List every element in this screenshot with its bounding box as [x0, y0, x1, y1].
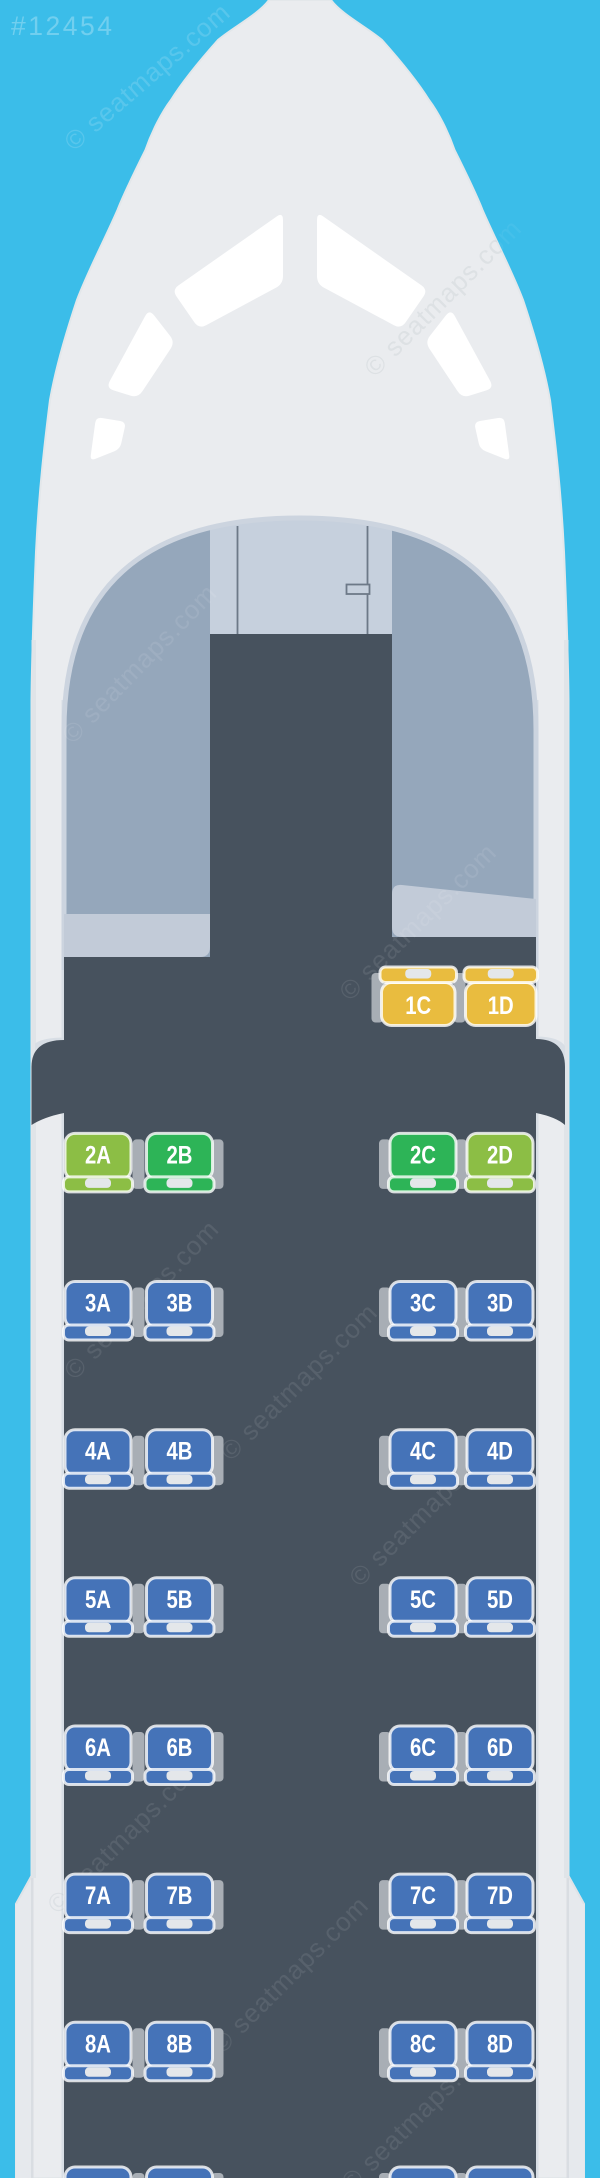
svg-text:2D: 2D	[487, 1141, 513, 1169]
svg-text:6D: 6D	[487, 1734, 513, 1762]
svg-text:4D: 4D	[487, 1438, 513, 1466]
svg-text:4A: 4A	[85, 1438, 111, 1466]
svg-text:3A: 3A	[85, 1290, 111, 1318]
svg-text:7A: 7A	[85, 1882, 111, 1910]
svg-text:8D: 8D	[487, 2030, 513, 2058]
svg-text:6A: 6A	[85, 1734, 111, 1762]
svg-text:6C: 6C	[410, 1734, 436, 1762]
svg-text:2B: 2B	[167, 1141, 193, 1169]
svg-text:7D: 7D	[487, 1882, 513, 1910]
svg-text:3C: 3C	[410, 1290, 436, 1318]
svg-text:7C: 7C	[410, 1882, 436, 1910]
svg-text:1D: 1D	[488, 992, 514, 1020]
svg-text:1C: 1C	[405, 992, 431, 1020]
svg-text:5D: 5D	[487, 1586, 513, 1614]
svg-text:2A: 2A	[85, 1141, 111, 1169]
svg-text:8B: 8B	[167, 2030, 193, 2058]
svg-text:5A: 5A	[85, 1586, 111, 1614]
svg-text:4C: 4C	[410, 1438, 436, 1466]
svg-text:3B: 3B	[167, 1290, 193, 1318]
svg-text:6B: 6B	[167, 1734, 193, 1762]
svg-text:#12454: #12454	[11, 11, 114, 41]
svg-text:8C: 8C	[410, 2030, 436, 2058]
svg-text:4B: 4B	[167, 1438, 193, 1466]
svg-text:5B: 5B	[167, 1586, 193, 1614]
svg-text:3D: 3D	[487, 1290, 513, 1318]
svg-text:5C: 5C	[410, 1586, 436, 1614]
svg-text:7B: 7B	[167, 1882, 193, 1910]
svg-text:2C: 2C	[410, 1141, 436, 1169]
svg-text:8A: 8A	[85, 2030, 111, 2058]
